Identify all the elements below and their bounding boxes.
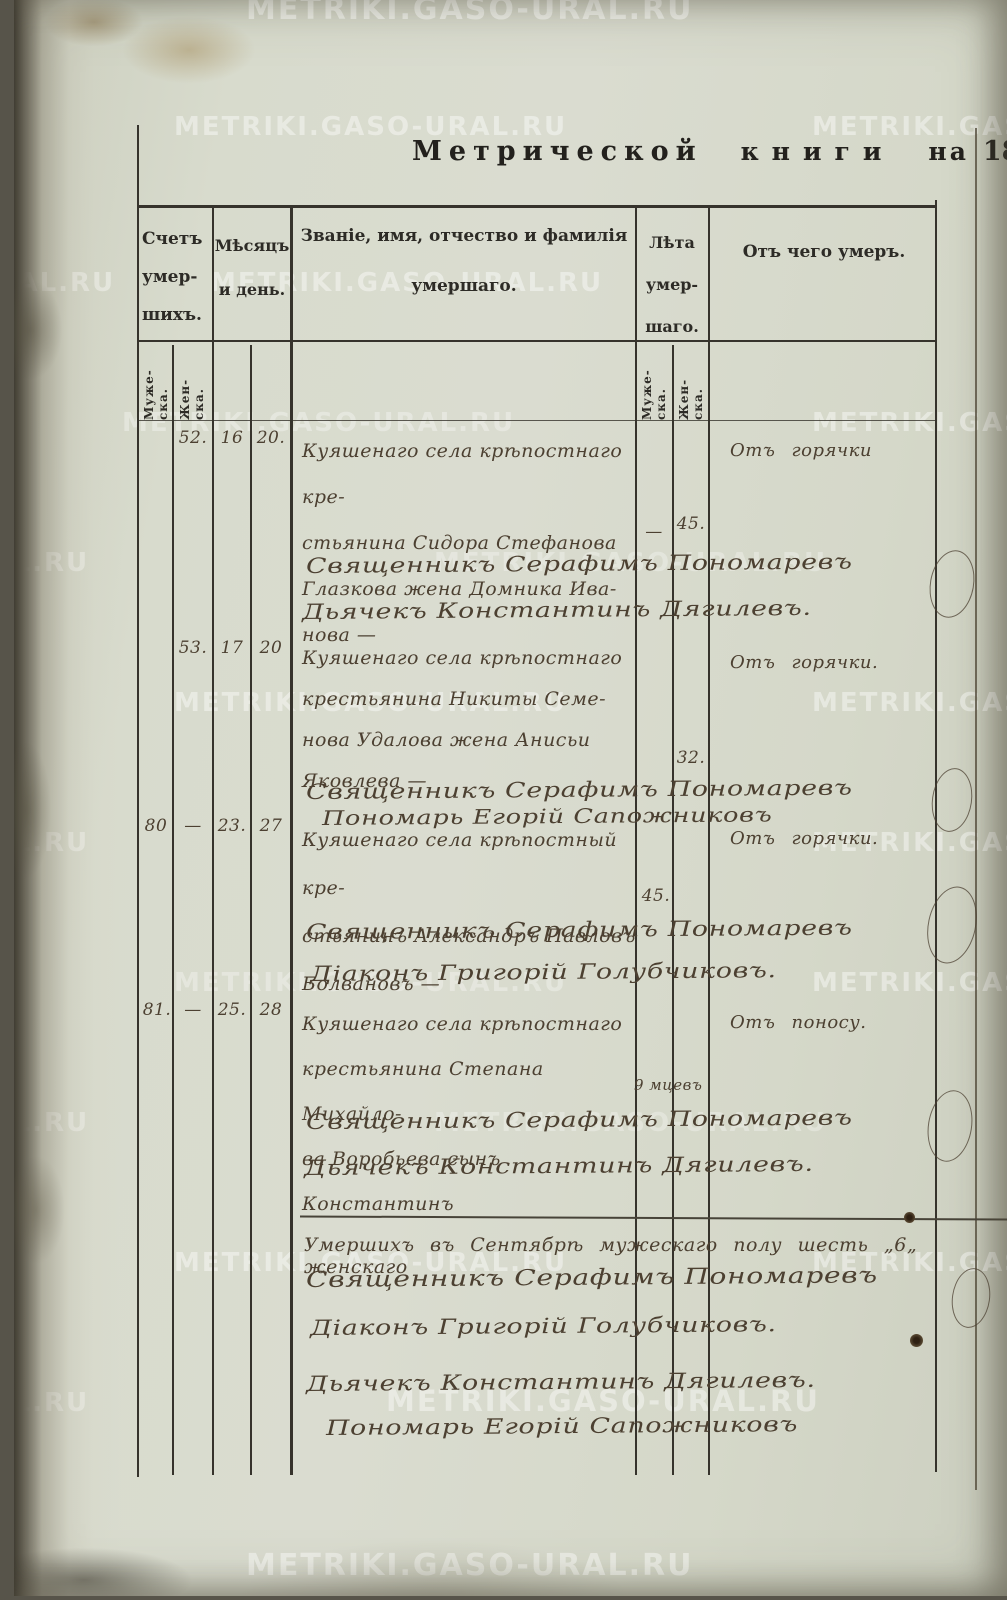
watermark-text: METRIKI.GASO-URAL.RU — [14, 268, 115, 298]
watermark-text: METRIKI.GASO-URAL.RU — [14, 548, 89, 578]
column-header-cause: Отъ чего умеръ. — [714, 242, 934, 262]
entry-number-female: 53. — [174, 638, 212, 658]
signature-flourish — [924, 547, 979, 622]
grid-line — [137, 340, 937, 342]
watermark-text: METRIKI.GASO-URAL.RU — [812, 968, 1007, 998]
entry-cause-of-death: Отъ горячки — [730, 440, 940, 461]
watermark-text: METRIKI.GASO-URAL.RU — [812, 408, 1007, 438]
column-header-count: Счетъ умер- шихъ. — [142, 220, 212, 334]
entry-day-of-death: 16 — [214, 428, 250, 448]
column-header-name-2: умершаго. — [294, 276, 634, 296]
grid-line — [137, 420, 937, 421]
column-header-name: Званіе, имя, отчество и фамилія — [294, 226, 634, 246]
watermark-text: METRIKI.GASO-URAL.RU — [14, 1108, 89, 1138]
entry-age-female: 45. — [674, 514, 708, 534]
summary-signature-clerk: Дьячекъ Константинъ Дягилевъ. — [306, 1368, 816, 1396]
grid-line — [137, 205, 937, 208]
entry-cause-of-death: Отъ поносу. — [730, 1012, 940, 1033]
paper-hole — [910, 1334, 923, 1347]
subheader-count-male: Муже- ска. — [142, 348, 170, 420]
entry-day-of-burial: 20 — [252, 638, 290, 658]
subheader-age-male: Муже- ска. — [640, 348, 668, 420]
entry-signature-priest: Священникъ Серафимъ Пономаревъ — [306, 550, 853, 578]
entry-number-male: 81. — [140, 1000, 174, 1020]
grid-line — [212, 207, 214, 1475]
watermark-text: METRIKI.GASO-URAL.RU — [14, 1388, 89, 1418]
entry-day-of-burial: 20. — [252, 428, 290, 448]
entry-age-male: 45. — [638, 886, 674, 906]
entry-signature-priest: Священникъ Серафимъ Пономаревъ — [306, 1106, 853, 1134]
entry-signature-deacon: Діаконъ Григорій Голубчиковъ. — [310, 958, 777, 986]
entry-day-of-death: 23. — [214, 816, 250, 836]
watermark-text: METRIKI.GASO-URAL.RU — [246, 1548, 694, 1583]
summary-signature-priest: Священникъ Серафимъ Пономаревъ — [306, 1263, 878, 1293]
column-header-age: Лѣта умер- шаго. — [638, 222, 706, 348]
entry-day-of-death: 17 — [214, 638, 250, 658]
title-word-book: книги — [741, 137, 895, 166]
entry-cause-of-death: Отъ горячки. — [730, 652, 940, 673]
entry-age-male: 9 мцевъ — [634, 1076, 708, 1094]
page-title: Метрическойкнигина1843 — [412, 136, 972, 174]
entry-cause-of-death: Отъ горячки. — [730, 828, 940, 849]
grid-line — [172, 345, 174, 1475]
entry-number-male: 80 — [140, 816, 172, 836]
entry-number-female: — — [176, 1000, 210, 1020]
subheader-age-female: Жен- ска. — [677, 348, 705, 420]
entry-day-of-burial: 28 — [252, 1000, 290, 1020]
entry-number-female: 52. — [174, 428, 212, 448]
column-header-date: Мѣсяцъ и день. — [214, 224, 290, 312]
title-word-metrical: Метрической — [412, 136, 703, 167]
grid-line — [250, 345, 252, 1475]
torn-page-edge — [14, 0, 124, 1596]
summary-signature-sexton: Пономарь Егорій Сапожниковъ — [326, 1412, 798, 1440]
entry-day-of-burial: 27 — [252, 816, 290, 836]
subheader-count-female: Жен- ска. — [178, 348, 206, 420]
grid-line — [137, 125, 139, 1477]
summary-signature-deacon: Діаконъ Григорій Голубчиковъ. — [310, 1312, 777, 1340]
entry-number-female: — — [176, 816, 210, 836]
paper-hole — [904, 1212, 915, 1223]
entry-day-of-death: 25. — [214, 1000, 250, 1020]
entry-signature-clerk: Дьячекъ Константинъ Дягилевъ. — [304, 1152, 814, 1180]
title-year-printed: 18 — [983, 136, 1007, 167]
entry-age-female: 32. — [674, 748, 708, 768]
watermark-text: METRIKI.GASO-URAL.RU — [812, 688, 1007, 718]
scanned-page: METRIKI.GASO-URAL.RU METRIKI.GASO-URAL.R… — [14, 0, 1007, 1596]
entry-signature-priest: Священникъ Серафимъ Пономаревъ — [306, 776, 853, 804]
watermark-text: METRIKI.GASO-URAL.RU — [14, 828, 89, 858]
signature-flourish — [923, 1087, 978, 1165]
entry-signature-priest: Священникъ Серафимъ Пономаревъ — [306, 916, 853, 944]
entry-age-male: — — [636, 522, 672, 542]
watermark-text: METRIKI.GASO-URAL.RU — [246, 0, 694, 27]
title-word-na: на — [928, 137, 969, 166]
grid-line — [290, 207, 293, 1475]
entry-signature-clerk: Дьячекъ Константинъ Дягилевъ. — [302, 596, 812, 624]
